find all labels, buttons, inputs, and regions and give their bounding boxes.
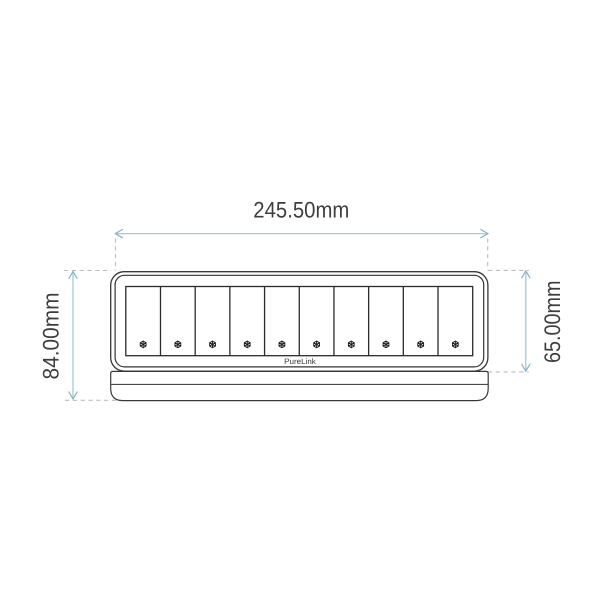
svg-text:84.00mm: 84.00mm [38,293,63,380]
svg-text:65.00mm: 65.00mm [540,281,565,364]
svg-text:PureLink: PureLink [284,357,316,366]
svg-text:245.50mm: 245.50mm [253,198,349,223]
